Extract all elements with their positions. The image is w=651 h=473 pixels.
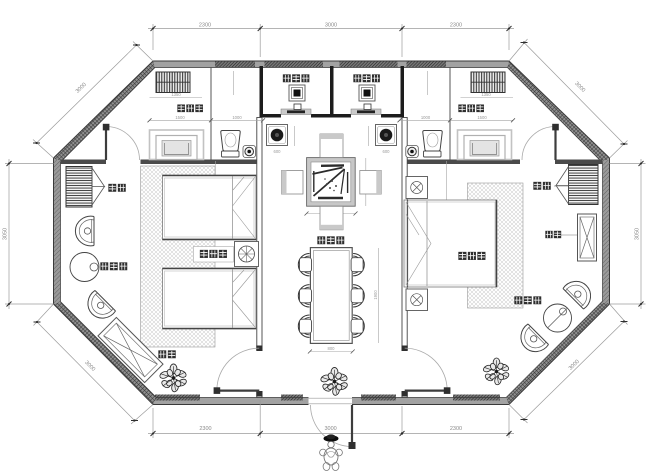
svg-text:1500: 1500	[175, 115, 185, 120]
svg-text:3000: 3000	[325, 23, 337, 29]
svg-text:2300: 2300	[199, 23, 211, 29]
svg-text:2300: 2300	[450, 23, 462, 29]
svg-text:800: 800	[328, 346, 336, 351]
svg-text:1000: 1000	[421, 115, 431, 120]
svg-text:3050: 3050	[635, 228, 641, 240]
svg-text:3000: 3000	[324, 426, 336, 432]
svg-text:600: 600	[274, 149, 282, 154]
svg-text:1900: 1900	[373, 290, 378, 300]
svg-text:1500: 1500	[477, 115, 487, 120]
svg-text:600: 600	[383, 149, 391, 154]
svg-text:2300: 2300	[450, 426, 462, 432]
svg-text:3050: 3050	[3, 228, 9, 240]
svg-text:2300: 2300	[199, 426, 211, 432]
svg-text:1000: 1000	[232, 115, 242, 120]
